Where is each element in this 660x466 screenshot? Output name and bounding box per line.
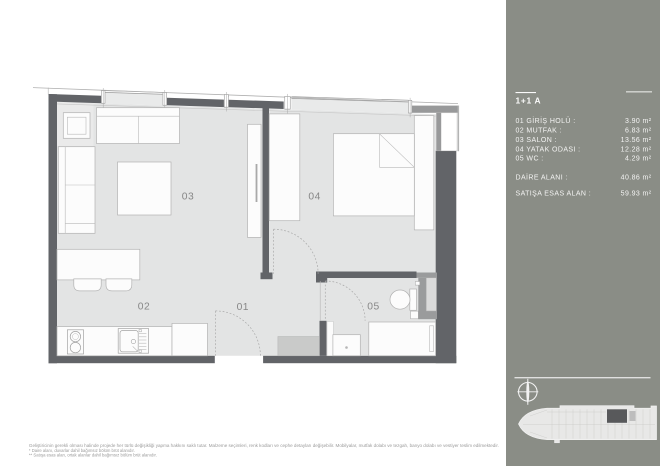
svg-text:SATIŞA ESAS ALAN :: SATIŞA ESAS ALAN : (516, 191, 592, 198)
svg-text:02: 02 (138, 302, 150, 313)
svg-text:03: 03 (182, 191, 194, 202)
svg-text:12.28 m²: 12.28 m² (621, 146, 652, 153)
svg-text:59.93 m²: 59.93 m² (621, 191, 652, 198)
svg-text:02 MUTFAK :: 02 MUTFAK : (516, 128, 562, 135)
svg-text:04: 04 (308, 191, 320, 202)
svg-text:05: 05 (367, 301, 379, 312)
svg-text:DAİRE ALANI :: DAİRE ALANI : (516, 172, 568, 181)
svg-text:3.90 m²: 3.90 m² (625, 118, 652, 125)
svg-text:40.86 m²: 40.86 m² (621, 174, 652, 181)
svg-text:01 GİRİŞ HOLÜ :: 01 GİRİŞ HOLÜ : (516, 116, 576, 125)
svg-text:04 YATAK ODASI :: 04 YATAK ODASI : (516, 146, 581, 153)
svg-text:** Satışa esas alan, ortak ala: ** Satışa esas alan, ortak alanlar dahil… (29, 452, 157, 457)
svg-text:4.29 m²: 4.29 m² (625, 156, 652, 163)
svg-text:01: 01 (237, 302, 249, 313)
svg-text:03 SALON :: 03 SALON : (516, 137, 557, 144)
svg-text:13.56 m²: 13.56 m² (621, 137, 652, 144)
svg-text:05 WC :: 05 WC : (516, 156, 544, 163)
svg-text:6.83 m²: 6.83 m² (625, 128, 652, 135)
svg-text:1+1 A: 1+1 A (516, 95, 542, 105)
